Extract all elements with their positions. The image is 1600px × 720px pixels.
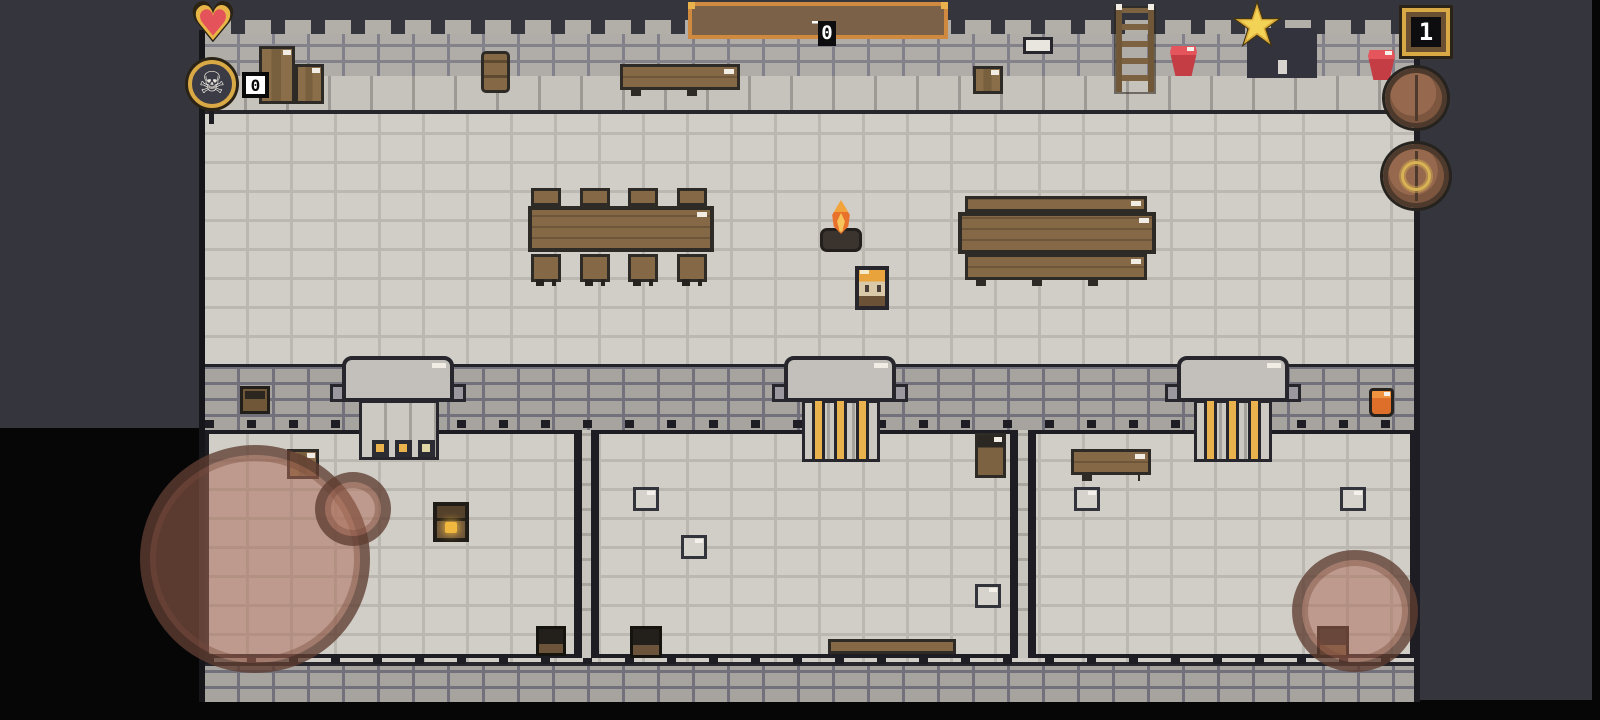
bench-right-table-bottom — [965, 254, 1147, 280]
stool — [531, 188, 561, 206]
gate-right-arch — [1177, 356, 1289, 402]
gate-button-1 — [372, 440, 389, 457]
gate-button-2 — [395, 440, 412, 457]
gate-left-arch — [342, 356, 454, 402]
long-table-right — [958, 212, 1156, 254]
gate-right-bar-1 — [1204, 398, 1217, 462]
edge-barrel-1 — [1385, 68, 1447, 128]
gate-mid-bar-2 — [834, 398, 847, 462]
room-middle — [595, 430, 1014, 658]
skull-badge: ☠ — [188, 60, 236, 108]
wall-chest — [240, 386, 270, 414]
big-barrel-right — [1292, 550, 1418, 672]
wood-plank — [828, 639, 956, 654]
player-character — [855, 266, 889, 310]
bench-top-wall — [620, 64, 740, 90]
star-icon: ★★★ — [1228, 0, 1286, 56]
stool — [531, 254, 561, 282]
crate-stool-top-wall — [973, 66, 1003, 94]
small-barrel-left — [315, 472, 391, 546]
stone-block — [1074, 487, 1100, 511]
wall-sign — [1023, 37, 1053, 54]
crate-stack-b — [295, 64, 324, 104]
stool — [677, 188, 707, 206]
gate-right-bar-2 — [1226, 398, 1239, 462]
wall-top-blocks — [205, 76, 1414, 114]
skull-stake — [209, 108, 214, 124]
gate-mid-bar-1 — [812, 398, 825, 462]
stone-block — [681, 535, 707, 559]
great-hall-floor — [205, 114, 1414, 364]
stool — [580, 188, 610, 206]
ladder — [1116, 8, 1154, 92]
gate-button-3 — [418, 440, 435, 457]
stool — [628, 254, 658, 282]
long-table-left — [528, 206, 714, 252]
room-divider-1 — [578, 430, 595, 658]
stool — [677, 254, 707, 282]
gate-mid-bar-3 — [856, 398, 869, 462]
timer-sign: 00:09 – 05:00 — [688, 2, 948, 39]
room-divider-2 — [1014, 430, 1032, 658]
stone-block — [1340, 487, 1366, 511]
gate-mid-arch — [784, 356, 896, 402]
void-right-edge — [1592, 0, 1600, 720]
heart-icon: ♥♥♥ — [186, 2, 240, 50]
dark-chest-1 — [536, 626, 566, 656]
bench-right-room — [1071, 449, 1151, 475]
level-badge: 1 — [1402, 8, 1450, 56]
level-value: 1 — [1411, 17, 1441, 47]
stool — [628, 188, 658, 206]
crate-mid-room — [975, 433, 1006, 478]
gate-right-bar-3 — [1248, 398, 1261, 462]
edge-barrel-2 — [1383, 144, 1449, 208]
gold-chest — [433, 502, 469, 542]
bench-right-table-top — [965, 196, 1147, 212]
stone-block — [633, 487, 659, 511]
void-bottom-band — [0, 700, 1600, 720]
dark-chest-2 — [630, 626, 662, 658]
barrel-side-top-wall — [481, 51, 510, 93]
stone-block — [975, 584, 1001, 608]
skull-counter: 0 — [242, 72, 269, 98]
orange-jar — [1369, 388, 1394, 417]
stool — [580, 254, 610, 282]
bottom-wall — [205, 662, 1414, 702]
skull-icon: ☠ — [199, 69, 226, 99]
game-viewport[interactable]: ♥♥♥♥♥♥♥♥♥ ☠ 0 00:09 – 05:00 ★★★★★★★★★ 1 — [0, 0, 1600, 720]
